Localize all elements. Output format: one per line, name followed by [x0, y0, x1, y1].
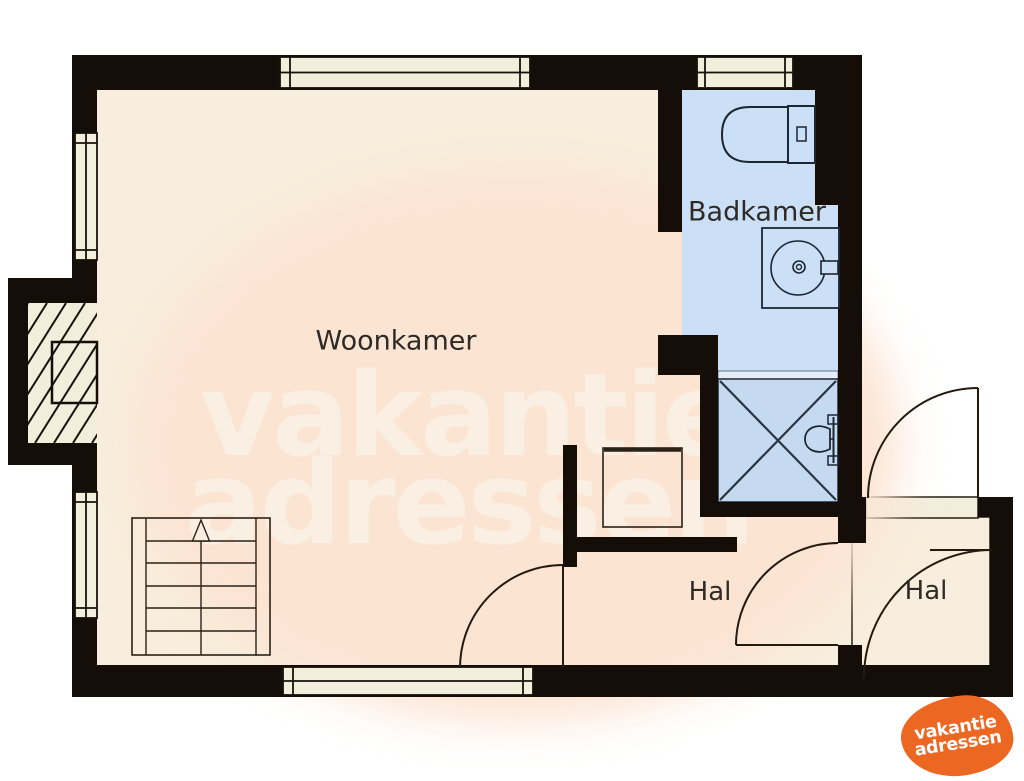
shower-sill [718, 371, 838, 379]
window-left-lower [75, 492, 97, 618]
window-top-bathroom [697, 57, 793, 88]
window-left-upper [75, 133, 97, 260]
wall-hall-divider-upper [838, 497, 866, 543]
wall-right-upper [838, 55, 862, 517]
floorplan-canvas: vakantie adressen [0, 0, 1024, 768]
sink-icon [762, 228, 839, 308]
wall-bathroom-duct [815, 90, 838, 205]
window-top-left [280, 57, 530, 88]
bathroom-label: Badkamer [688, 197, 826, 228]
wall-hall2-right [990, 497, 1013, 697]
hall2-label: Hal [905, 576, 948, 606]
wall-entrance-corner [978, 497, 1013, 517]
wall-shower-left [700, 375, 718, 505]
living-room-label: Woonkamer [316, 326, 477, 357]
wall-hall-divider-lower [838, 645, 862, 692]
chimney-wall-left [8, 278, 28, 465]
wall-bottom [72, 665, 1013, 697]
vakantieadressen-logo-text: vakantie adressen [911, 713, 1003, 758]
floorplan-drawing: vakantie adressen [0, 0, 1024, 768]
chimney-wall-bottom [8, 440, 97, 465]
toilet-icon [722, 106, 815, 163]
wall-living-hall-horizontal [563, 537, 737, 552]
wall-bathroom-left-upper [658, 90, 682, 232]
wall-bathroom-left-lower [658, 335, 718, 375]
window-bottom [283, 667, 533, 695]
hall1-label: Hal [689, 577, 732, 607]
wall-below-shower [700, 502, 862, 517]
